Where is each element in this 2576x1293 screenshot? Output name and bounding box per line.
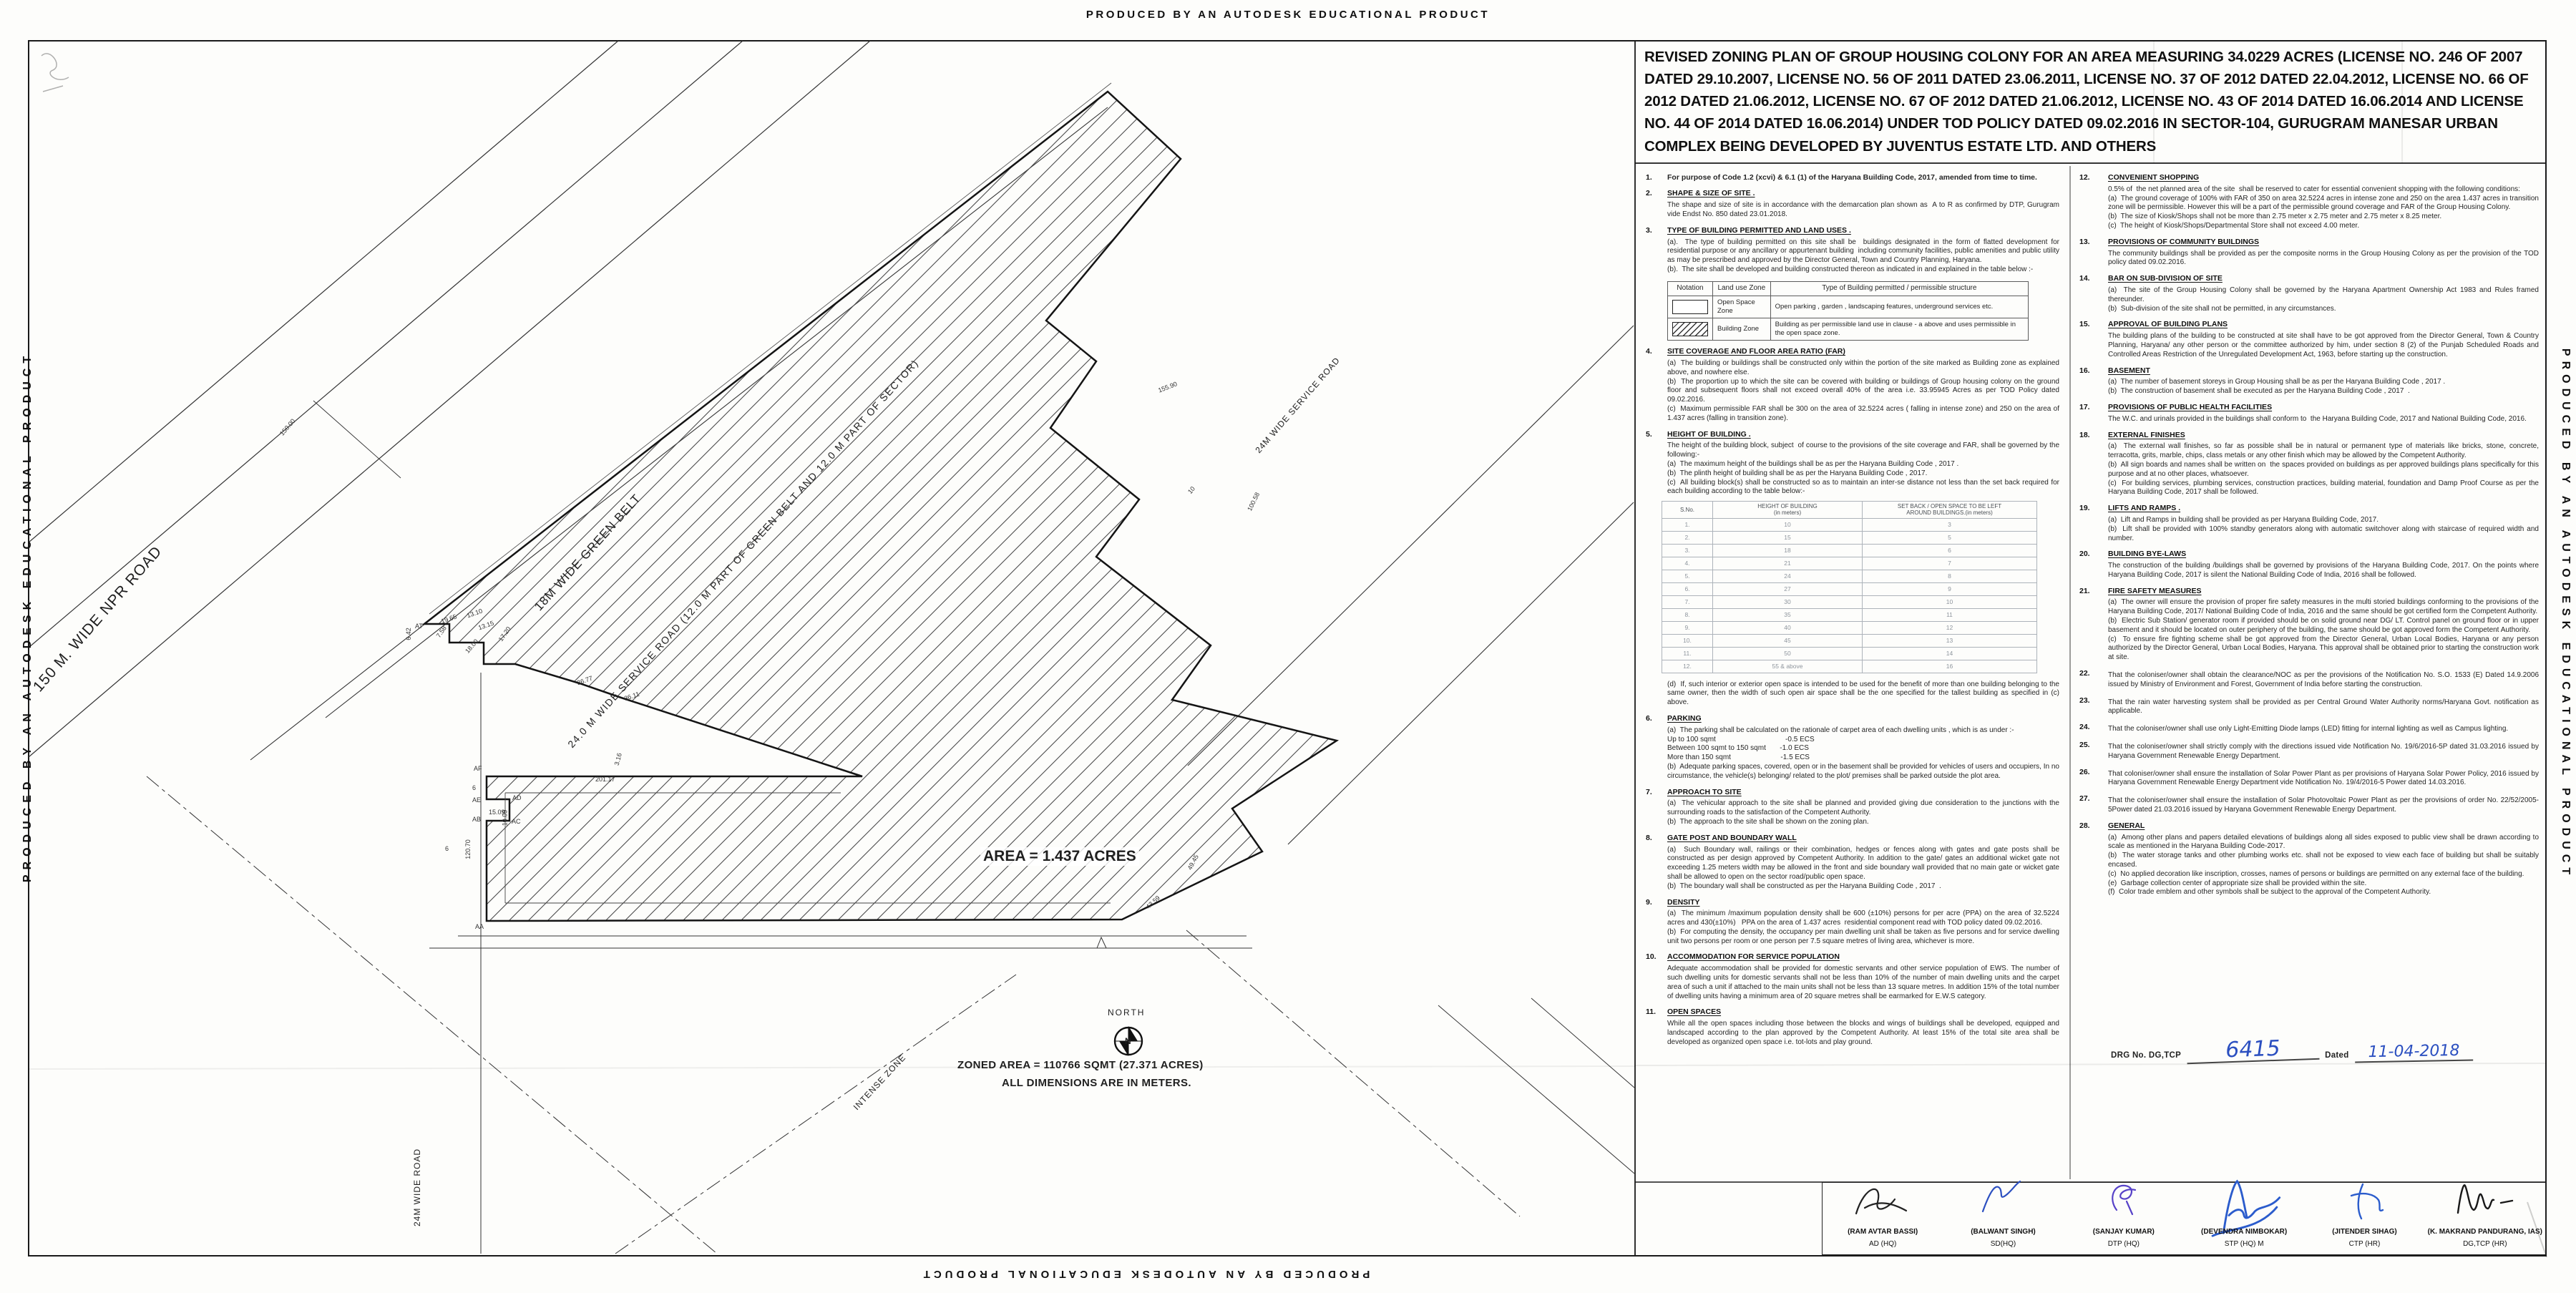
boundary-point-label: AB bbox=[472, 816, 481, 823]
dim-label: 36.77 bbox=[576, 675, 594, 687]
dim-label: 49.45 bbox=[1186, 854, 1200, 872]
clause-15: 15. APPROVAL OF BUILDING PLANS The build… bbox=[2079, 320, 2539, 359]
clause-3: 3. TYPE OF BUILDING PERMITTED AND LAND U… bbox=[1646, 226, 2059, 275]
clause-1: 1. For purpose of Code 1.2 (xcvi) & 6.1 … bbox=[1646, 173, 2059, 182]
boundary-point-label: AT bbox=[415, 623, 423, 630]
setback-inner-lines bbox=[429, 83, 1111, 903]
clause-23: 23. That the rain water harvesting syste… bbox=[2079, 696, 2539, 717]
table-row: 4.217 bbox=[1662, 557, 2037, 570]
clause-17: 17. PROVISIONS OF PUBLIC HEALTH FACILITI… bbox=[2079, 403, 2539, 424]
clause-4: 4. SITE COVERAGE AND FLOOR AREA RATIO (F… bbox=[1646, 347, 2059, 423]
dim-label: 13.10 bbox=[466, 608, 484, 620]
signature-block: (DEVENDRA NIMBOKAR) STP (HQ) M bbox=[2184, 1183, 2304, 1254]
drawing-title: REVISED ZONING PLAN OF GROUP HOUSING COL… bbox=[1644, 46, 2537, 157]
dim-label: 6 bbox=[445, 845, 449, 852]
table-row: 8.3511 bbox=[1662, 608, 2037, 621]
secondary-road-lines bbox=[429, 673, 1252, 1254]
dim-label: 13.15 bbox=[477, 620, 495, 632]
dim-label: 3.16 bbox=[613, 752, 623, 766]
left-road-label: 24M WIDE ROAD bbox=[412, 1148, 422, 1226]
building-zone-polygon bbox=[424, 92, 1337, 921]
clause-25: 25. That the coloniser/owner shall stric… bbox=[2079, 741, 2539, 761]
service-road-label: 24M WIDE SERVICE ROAD bbox=[1253, 355, 1342, 455]
clause-19: 19. LIFTS AND RAMPS . (a) Lift and Ramps… bbox=[2079, 504, 2539, 543]
height-setback-table: S.No. HEIGHT OF BUILDING (in meters) SET… bbox=[1662, 501, 2037, 673]
dim-label: 201.17 bbox=[595, 776, 615, 783]
dim-label: 10.09 bbox=[501, 810, 508, 826]
clause-11: 11. OPEN SPACES While all the open space… bbox=[1646, 1007, 2059, 1047]
table-row: 6.279 bbox=[1662, 582, 2037, 595]
clause-5: 5. HEIGHT OF BUILDING . The height of th… bbox=[1646, 430, 2059, 497]
dim-label: 6.42 bbox=[405, 628, 412, 640]
autodesk-banner-top: PRODUCED BY AN AUTODESK EDUCATIONAL PROD… bbox=[987, 9, 1589, 21]
green-belt-service-road-lines bbox=[250, 107, 1108, 760]
clause-5d: (d) If, such interior or exterior open s… bbox=[1646, 678, 2059, 708]
table-row: 2.155 bbox=[1662, 531, 2037, 544]
signature-block: (JITENDER SIHAG) CTP (HR) bbox=[2304, 1183, 2424, 1254]
signature-block: (SANJAY KUMAR) DTP (HQ) bbox=[2064, 1183, 2184, 1254]
table-row: Open Space Zone Open parking , garden , … bbox=[1668, 296, 2029, 318]
clauses-column-left: 1. For purpose of Code 1.2 (xcvi) & 6.1 … bbox=[1646, 173, 2059, 1178]
clause-6: 6. PARKING (a) The parking shall be calc… bbox=[1646, 714, 2059, 781]
clause-20: 20. BUILDING BYE-LAWS The construction o… bbox=[2079, 550, 2539, 580]
table-row: 11.5014 bbox=[1662, 647, 2037, 660]
drg-number-row: DRG No. DG,TCP 6415 Dated 11-04-2018 bbox=[2111, 1039, 2473, 1062]
clause-10: 10. ACCOMMODATION FOR SERVICE POPULATION… bbox=[1646, 952, 2059, 1001]
site-area-label: AREA = 1.437 ACRES bbox=[980, 847, 1139, 866]
clause-24: 24. That the coloniser/owner shall use o… bbox=[2079, 723, 2539, 734]
dim-label: 100.58 bbox=[1246, 491, 1261, 512]
dim-label: 43.59 bbox=[1145, 894, 1161, 911]
clause-28: 28. GENERAL (a) Among other plans and pa… bbox=[2079, 821, 2539, 897]
dim-label: 7.58 bbox=[435, 625, 448, 639]
dim-label: 18.00 bbox=[464, 638, 479, 655]
table-row: 3.186 bbox=[1662, 544, 2037, 557]
autodesk-banner-left: PRODUCED BY AN AUTODESK EDUCATIONAL PROD… bbox=[21, 333, 34, 900]
zoned-area-label: ZONED AREA = 110766 SQMT (27.371 ACRES) bbox=[957, 1059, 1204, 1071]
clause-16: 16. BASEMENT (a) The number of basement … bbox=[2079, 366, 2539, 396]
table-row: 10.4513 bbox=[1662, 634, 2037, 647]
dim-label: 19.65 bbox=[440, 613, 458, 625]
dim-label: 6 bbox=[472, 784, 476, 791]
table-row: 1.103 bbox=[1662, 518, 2037, 531]
boundary-point-label: AD bbox=[512, 794, 522, 801]
signature-scribble bbox=[2449, 1177, 2521, 1220]
drg-label: DRG No. DG,TCP bbox=[2111, 1051, 2181, 1062]
service-road-long-label: 24.0 M WIDE SERVICE ROAD (12.0 M PART OF… bbox=[565, 357, 921, 750]
table-row: 5.248 bbox=[1662, 570, 2037, 582]
npr-road-label: 150 M. WIDE NPR ROAD bbox=[30, 543, 166, 696]
clause-2: 2. SHAPE & SIZE OF SITE . The shape and … bbox=[1646, 189, 2059, 219]
clause-26: 26. That coloniser/owner shall ensure th… bbox=[2079, 768, 2539, 789]
clause-12: 12. CONVENIENT SHOPPING 0.5% of the net … bbox=[2079, 173, 2539, 231]
signature-scribble bbox=[1974, 1177, 2031, 1220]
boundary-point-label: AE bbox=[472, 796, 481, 804]
table-row: 9.4012 bbox=[1662, 621, 2037, 634]
zone-boundary-dashed-lines bbox=[147, 776, 1520, 1254]
autodesk-banner-bottom: PRODUCED BY AN AUTODESK EDUCATIONAL PROD… bbox=[844, 1268, 1445, 1280]
signature-block: (BALWANT SINGH) SD(HQ) bbox=[1943, 1183, 2063, 1254]
clause-13: 13. PROVISIONS OF COMMUNITY BUILDINGS Th… bbox=[2079, 238, 2539, 268]
clause-27: 27. That the coloniser/owner shall ensur… bbox=[2079, 794, 2539, 815]
boundary-point-label: AF bbox=[474, 765, 482, 772]
boundary-point-label: AC bbox=[512, 818, 521, 825]
dim-label: 17.20 bbox=[497, 625, 512, 643]
north-label: NORTH bbox=[1108, 1007, 1145, 1018]
table-row: 12.55 & above16 bbox=[1662, 660, 2037, 673]
clause-8: 8. GATE POST AND BOUNDARY WALL (a) Such … bbox=[1646, 834, 2059, 892]
clause-14: 14. BAR ON SUB-DIVISION OF SITE (a) The … bbox=[2079, 274, 2539, 313]
table-row: 7.3010 bbox=[1662, 595, 2037, 608]
clause-18: 18. EXTERNAL FINISHES (a) The external w… bbox=[2079, 431, 2539, 498]
dim-label: 155.90 bbox=[1157, 380, 1178, 394]
open-space-swatch bbox=[1672, 300, 1708, 314]
signature-scribble bbox=[2095, 1177, 2152, 1220]
signature-scribble bbox=[1850, 1177, 1915, 1221]
signature-strip: (RAM AVTAR BASSI) AD (HQ) (BALWANT SINGH… bbox=[1822, 1182, 2546, 1255]
land-use-notation-table: Notation Land use Zone Type of Building … bbox=[1667, 281, 2029, 341]
clause-22: 22. That the coloniser/owner shall obtai… bbox=[2079, 669, 2539, 690]
drg-number-handwritten: 6415 bbox=[2187, 1037, 2320, 1064]
dimensions-note-label: ALL DIMENSIONS ARE IN METERS. bbox=[1002, 1077, 1191, 1089]
clause-9: 9. DENSITY (a) The minimum /maximum popu… bbox=[1646, 898, 2059, 947]
zoning-plan-sheet: PRODUCED BY AN AUTODESK EDUCATIONAL PROD… bbox=[0, 0, 2576, 1293]
drg-date-handwritten: 11-04-2018 bbox=[2354, 1042, 2472, 1063]
signature-scribble bbox=[2336, 1177, 2393, 1223]
green-belt-label: 18M WIDE GREEN BELT bbox=[532, 492, 644, 614]
service-road-right-lines bbox=[1188, 326, 1634, 844]
signature-block: (RAM AVTAR BASSI) AD (HQ) bbox=[1823, 1183, 1943, 1254]
clauses-column-right: 12. CONVENIENT SHOPPING 0.5% of the net … bbox=[2079, 173, 2539, 1178]
boundary-point-label: AA bbox=[475, 923, 484, 930]
clause-7: 7. APPROACH TO SITE (a) The vehicular ap… bbox=[1646, 788, 2059, 827]
dated-label: Dated bbox=[2325, 1051, 2348, 1062]
clause-21: 21. FIRE SAFETY MEASURES (a) The owner w… bbox=[2079, 587, 2539, 663]
dim-label: 150.00 bbox=[278, 417, 297, 436]
autodesk-banner-right: PRODUCED BY AN AUTODESK EDUCATIONAL PROD… bbox=[2559, 331, 2572, 897]
signature-block: (K. MAKRAND PANDURANG, IAS) DG,TCP (HR) bbox=[2425, 1183, 2545, 1254]
table-row: Building Zone Building as per permissibl… bbox=[1668, 318, 2029, 340]
dim-label: 120.70 bbox=[464, 839, 472, 859]
compass-n-letter: N bbox=[1125, 1036, 1131, 1046]
dim-label: 10 bbox=[1186, 485, 1196, 495]
intense-zone-label: INTENSE ZONE bbox=[852, 1053, 908, 1112]
misc-diagonal-lines bbox=[1438, 998, 1634, 1174]
npr-road-lines bbox=[29, 41, 870, 757]
building-zone-swatch bbox=[1672, 322, 1708, 336]
